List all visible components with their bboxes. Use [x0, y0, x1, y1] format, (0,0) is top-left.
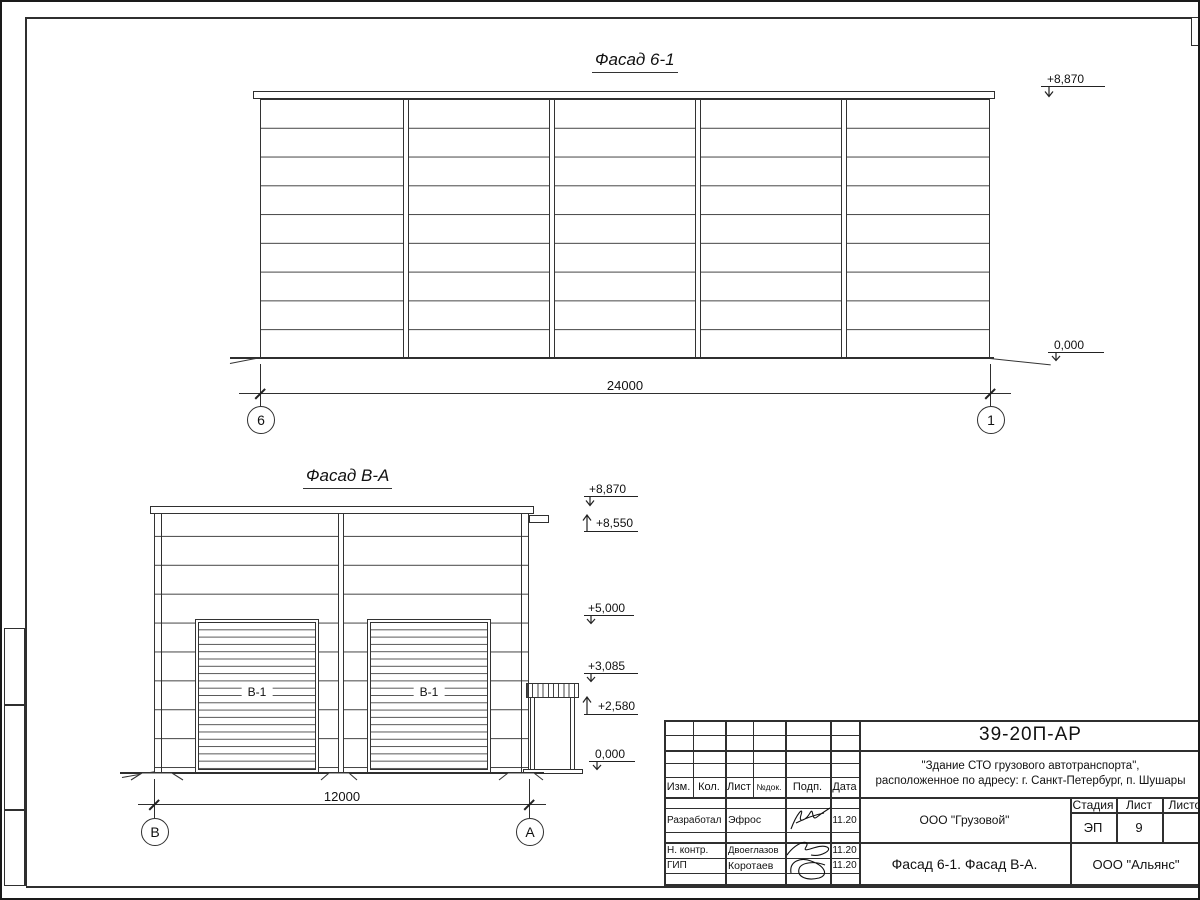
facade1-axis-bubble-1: 1 — [977, 406, 1005, 434]
project-name-line1: "Здание СТО грузового автотранспорта", — [921, 759, 1139, 774]
sheets-label: Листов — [1162, 797, 1200, 812]
margin-stamp-box-2 — [4, 705, 25, 810]
facade2-canopy-post-right — [570, 698, 575, 770]
facade2-level-roof-arrow-icon — [581, 514, 593, 531]
project-name-line2: расположенное по адресу: г. Санкт-Петерб… — [876, 774, 1186, 789]
frame-bottom-line — [26, 886, 1200, 888]
facade1-ext-line-left — [260, 364, 261, 406]
facade2-corner-column-right — [521, 514, 522, 772]
facade1-title: Фасад 6-1 — [592, 50, 678, 73]
facade2-ext-line-left — [154, 779, 155, 818]
signoff-name: Эфрос — [725, 808, 785, 832]
facade1-mullion-1 — [403, 100, 409, 357]
frame-top-line — [26, 17, 1200, 19]
facade2-mullion — [338, 514, 344, 772]
document-code: 39-20П-АР — [859, 720, 1200, 750]
facade2-dim-line — [138, 804, 546, 805]
stage-label: Стадия — [1070, 797, 1116, 812]
facade2-apron-right — [498, 772, 544, 781]
facade1-ground-line — [230, 357, 994, 359]
facade2-level-canopy-top-value: +3,085 — [588, 659, 625, 673]
facade2-gate-right-slats: В-1 — [370, 622, 488, 770]
facade2-corner-column-left — [161, 514, 162, 772]
rev-header-podp: Подп. — [785, 777, 830, 797]
facade2-gate-left-slats: В-1 — [198, 622, 316, 770]
facade2-level-zero-value: 0,000 — [595, 747, 625, 761]
facade1-dim-value: 24000 — [607, 378, 643, 393]
facade2-gate-right: В-1 — [367, 619, 491, 773]
facade1-mullion-3 — [695, 100, 701, 357]
facade1-level-zero-value: 0,000 — [1054, 338, 1084, 352]
facade2-apron-center — [320, 772, 358, 781]
facade2-level-roof-value: +8,550 — [596, 516, 633, 530]
sheet-label: Лист — [1116, 797, 1162, 812]
facade2-gate-left-label: В-1 — [242, 685, 273, 699]
signoff-date: 11.20 — [830, 808, 859, 832]
facade2-apron-left — [130, 772, 184, 781]
rev-header-kol: Кол. — [693, 777, 725, 797]
facade2-roof-pipe — [529, 515, 549, 523]
rev-header-data: Дата — [830, 777, 859, 797]
facade1-level-zero-arrow-icon — [1050, 352, 1062, 362]
facade2-level-canopy-bottom-shelf — [584, 714, 638, 715]
facade2-canopy — [526, 683, 579, 698]
rev-header-ndok: №док. — [753, 777, 785, 797]
facade1-mullion-4 — [841, 100, 847, 357]
project-name: "Здание СТО грузового автотранспорта", р… — [859, 750, 1200, 797]
facade2-gate-left: В-1 — [195, 619, 319, 773]
facade1-ext-line-right — [990, 364, 991, 406]
facade2-level-canopy-bottom-arrow-icon — [581, 696, 593, 714]
facade1-level-top-value: +8,870 — [1047, 72, 1084, 86]
rev-header-izm: Изм. — [664, 777, 693, 797]
signoff-name: Двоеглазов — [725, 842, 785, 858]
facade2-gate-right-label: В-1 — [414, 685, 445, 699]
signoff-role: Н. контр. — [664, 842, 725, 858]
facade2-axis-bubble-v: В — [141, 818, 169, 846]
signoff-role: ГИП — [664, 858, 725, 873]
signature-efros — [788, 803, 832, 833]
organization-name: ООО "Альянс" — [1070, 842, 1200, 886]
facade2-canopy-post-left — [530, 698, 535, 770]
facade2-dim-value: 12000 — [324, 789, 360, 804]
facade2-level-top-value: +8,870 — [589, 482, 626, 496]
margin-stamp-box-1 — [4, 628, 25, 705]
signoff-name: Коротаев — [725, 858, 785, 873]
facade1-ground-flare-right — [990, 358, 1051, 366]
facade2-title: Фасад В-А — [303, 466, 392, 489]
facade2-level-roof-shelf — [584, 531, 638, 532]
facade1-dim-line — [239, 393, 1011, 394]
facade2-level-canopy-bottom-value: +2,580 — [598, 699, 635, 713]
signoff-role: Разработал — [664, 808, 725, 832]
facade2-level-canopy-top-arrow-icon — [585, 673, 597, 683]
facade1-level-top-arrow-icon — [1043, 86, 1055, 98]
facade1-wall-panels — [260, 99, 990, 358]
signature-kontr-gip — [781, 837, 837, 881]
facade2-level-top-arrow-icon — [584, 496, 596, 507]
facade2-level-mid-arrow-icon — [585, 615, 597, 625]
facade1-axis-bubble-6: 6 — [247, 406, 275, 434]
sheet-content-title: Фасад 6-1. Фасад В-А. — [859, 842, 1070, 886]
stage-value: ЭП — [1070, 812, 1116, 842]
facade1-parapet-cap — [253, 91, 995, 99]
client-name: ООО "Грузовой" — [859, 797, 1070, 842]
frame-left-line — [25, 17, 27, 886]
facade2-axis-bubble-a: А — [516, 818, 544, 846]
facade1-mullion-2 — [549, 100, 555, 357]
rev-header-list: Лист — [725, 777, 753, 797]
facade2-ext-line-right — [529, 779, 530, 818]
sheet-number: 9 — [1116, 812, 1162, 842]
corner-stamp-box — [1191, 17, 1200, 46]
drawing-sheet: Фасад 6-1 +8,870 0,000 24000 6 1 Фасад В… — [0, 0, 1200, 900]
margin-stamp-box-3 — [4, 810, 25, 886]
facade2-level-mid-value: +5,000 — [588, 601, 625, 615]
facade2-level-zero-arrow-icon — [591, 761, 603, 771]
